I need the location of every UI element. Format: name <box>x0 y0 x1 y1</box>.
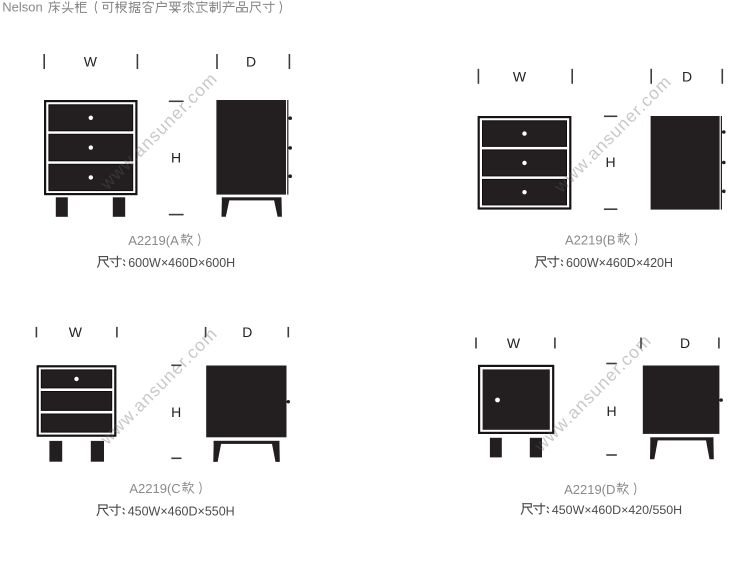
svg-text:W: W <box>69 324 83 340</box>
svg-text:A2219(A: A2219(A <box>128 233 179 248</box>
svg-text:D: D <box>682 68 692 84</box>
svg-text:H: H <box>606 403 616 419</box>
svg-text:H: H <box>171 404 181 420</box>
svg-text:600W×460D×420H: 600W×460D×420H <box>566 256 673 270</box>
svg-text:A2219(D: A2219(D <box>564 482 615 497</box>
svg-text:W: W <box>84 54 98 70</box>
svg-text:H: H <box>606 154 616 170</box>
svg-text:600W×460D×600H: 600W×460D×600H <box>128 256 235 270</box>
svg-text:A2219(B: A2219(B <box>565 233 616 248</box>
svg-text:A2219(C: A2219(C <box>129 481 180 496</box>
svg-text:Nelson: Nelson <box>2 0 42 14</box>
svg-text:D: D <box>242 324 252 340</box>
svg-text:D: D <box>680 335 690 351</box>
svg-text:D: D <box>246 54 256 70</box>
svg-text:450W×460D×420/550H: 450W×460D×420/550H <box>552 503 682 517</box>
svg-text:W: W <box>507 335 521 351</box>
svg-text:W: W <box>513 68 527 84</box>
svg-text:H: H <box>171 150 181 166</box>
svg-text:450W×460D×550H: 450W×460D×550H <box>128 504 235 518</box>
